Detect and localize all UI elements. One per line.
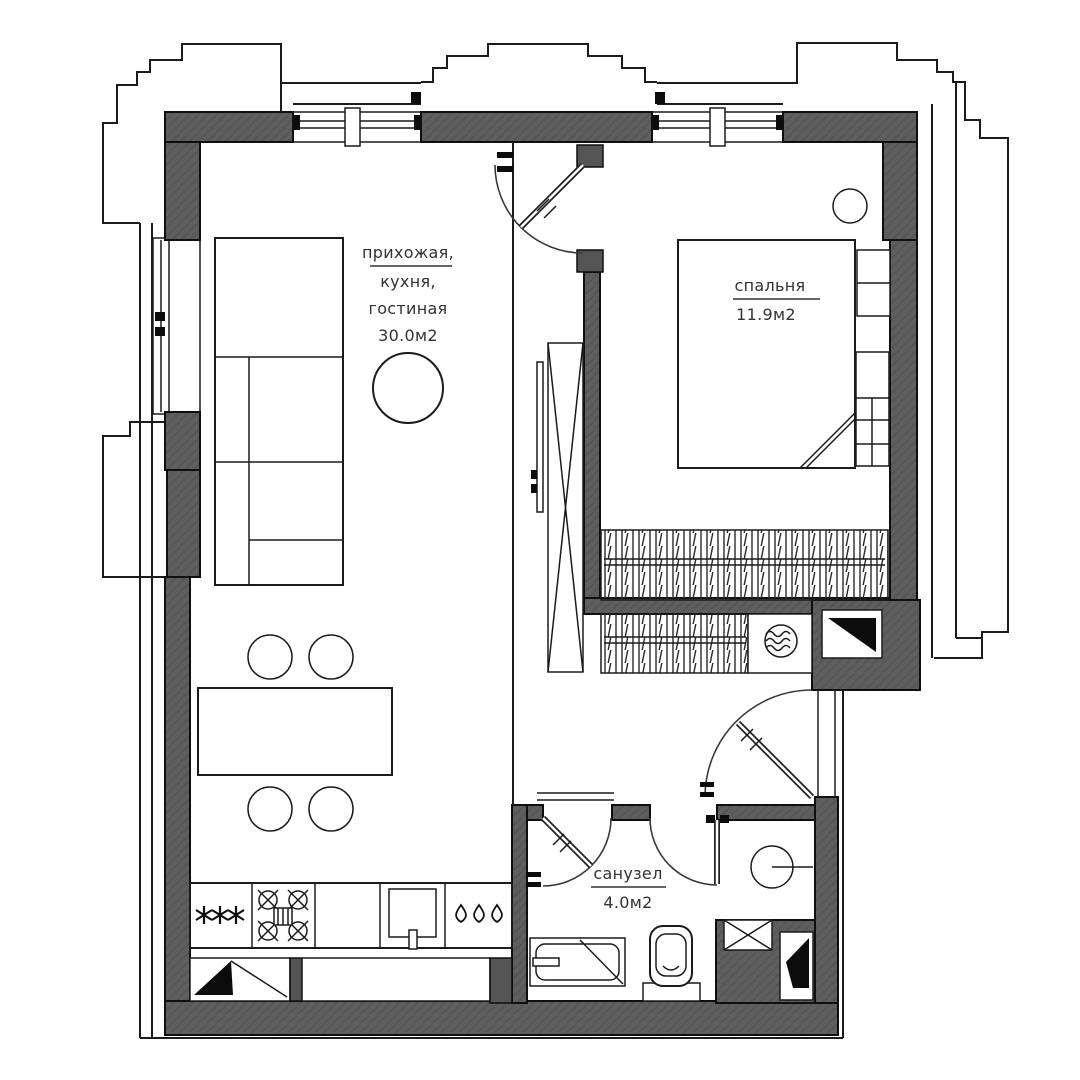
bar-stool: [309, 787, 353, 831]
facade-step-left-bay: [103, 422, 165, 577]
round-table: [373, 353, 443, 423]
washbasin: [751, 846, 813, 888]
entry-door: [495, 152, 583, 253]
wall-bathroom-top-a: [527, 805, 543, 820]
floor-plan-drawing: прихожая, кухня, гостиная 30.0м2 спальня…: [0, 0, 1080, 1080]
niche-window-right: [302, 958, 490, 1001]
window-living-top: [293, 108, 421, 146]
fan-unit: [748, 614, 812, 673]
wall-bathroom-top-b: [612, 805, 650, 820]
hall-door: [700, 690, 835, 797]
bar-stool: [248, 635, 292, 679]
window-stop-mark: [411, 92, 421, 104]
dresser: [856, 352, 889, 466]
wall-bottom: [165, 1001, 838, 1035]
bedroom-closet-hangers: [601, 530, 888, 600]
wall-right: [890, 240, 917, 600]
bedroom-label: спальня: [735, 276, 806, 295]
fridge-icon: [196, 906, 244, 924]
corridor: [495, 152, 583, 672]
bar-stool: [248, 787, 292, 831]
window-stop-mark: [655, 92, 665, 104]
living-room: [190, 238, 512, 1003]
wall-bathroom-top-c: [717, 805, 815, 820]
living-room-label-line3: гостиная: [368, 299, 447, 318]
niche-end: [490, 958, 512, 1003]
wall-right-corner: [883, 142, 917, 240]
wall-left-corner: [165, 142, 200, 240]
door-stop-mark: [527, 882, 541, 887]
nightstand: [857, 250, 890, 316]
bathroom-area: 4.0м2: [603, 893, 652, 912]
bathtub-handle: [533, 958, 559, 966]
dining-table-set: [198, 635, 392, 831]
wall-bathroom-left: [512, 805, 527, 1003]
bathroom-label: санузел: [593, 864, 662, 883]
floor-plan-canvas: прихожая, кухня, гостиная 30.0м2 спальня…: [0, 0, 1080, 1080]
hall-closet-hangers: [601, 614, 748, 673]
kitchen-counter: [190, 883, 512, 949]
facade-step-top-middle: [421, 44, 657, 82]
wardrobe-handle: [531, 470, 537, 479]
wall-top-middle: [421, 112, 652, 142]
wall-bathroom-right: [815, 797, 838, 1003]
ceiling-lamp: [833, 189, 867, 223]
fan-icon: [765, 625, 797, 657]
bathroom: [527, 793, 815, 1003]
vent-shaft-upper: [822, 610, 882, 658]
window-bedroom-top: [652, 108, 783, 146]
bathtub: [530, 938, 625, 986]
bed: [678, 240, 855, 468]
hinge-mark: [706, 815, 715, 823]
door-stop-mark: [700, 782, 714, 787]
sofa: [215, 238, 343, 585]
door-stop-mark: [700, 792, 714, 797]
bottom-window-niches: [190, 958, 512, 1003]
dining-table: [198, 688, 392, 775]
wall-top-right: [783, 112, 917, 142]
bedroom: [601, 189, 890, 600]
bathroom-dark-corner: [716, 920, 815, 1003]
bar-stool: [309, 635, 353, 679]
bedroom-area: 11.9м2: [736, 305, 796, 324]
niche-pier: [290, 958, 302, 1001]
door-stop-mark: [497, 166, 513, 172]
wall-left-mid: [167, 470, 200, 577]
living-room-label-line1: прихожая,: [362, 243, 454, 262]
hinge-mark: [720, 815, 729, 823]
door-handle: [544, 206, 556, 218]
wall-left-pier: [165, 412, 200, 470]
door-stop-mark: [527, 872, 541, 877]
wardrobe-handle: [531, 484, 537, 493]
sliding-door: [537, 362, 543, 512]
living-room-label-line2: кухня,: [380, 272, 436, 291]
hall: [601, 610, 882, 797]
living-room-area: 30.0м2: [378, 326, 438, 345]
wall-left-lower: [165, 577, 190, 1003]
wall-top-left: [165, 112, 293, 142]
toilet: [643, 926, 700, 1001]
door-stop-mark: [497, 152, 513, 158]
window-living-left: [153, 238, 200, 414]
tall-wardrobe: [531, 343, 583, 672]
wall-corridor: [584, 272, 600, 612]
